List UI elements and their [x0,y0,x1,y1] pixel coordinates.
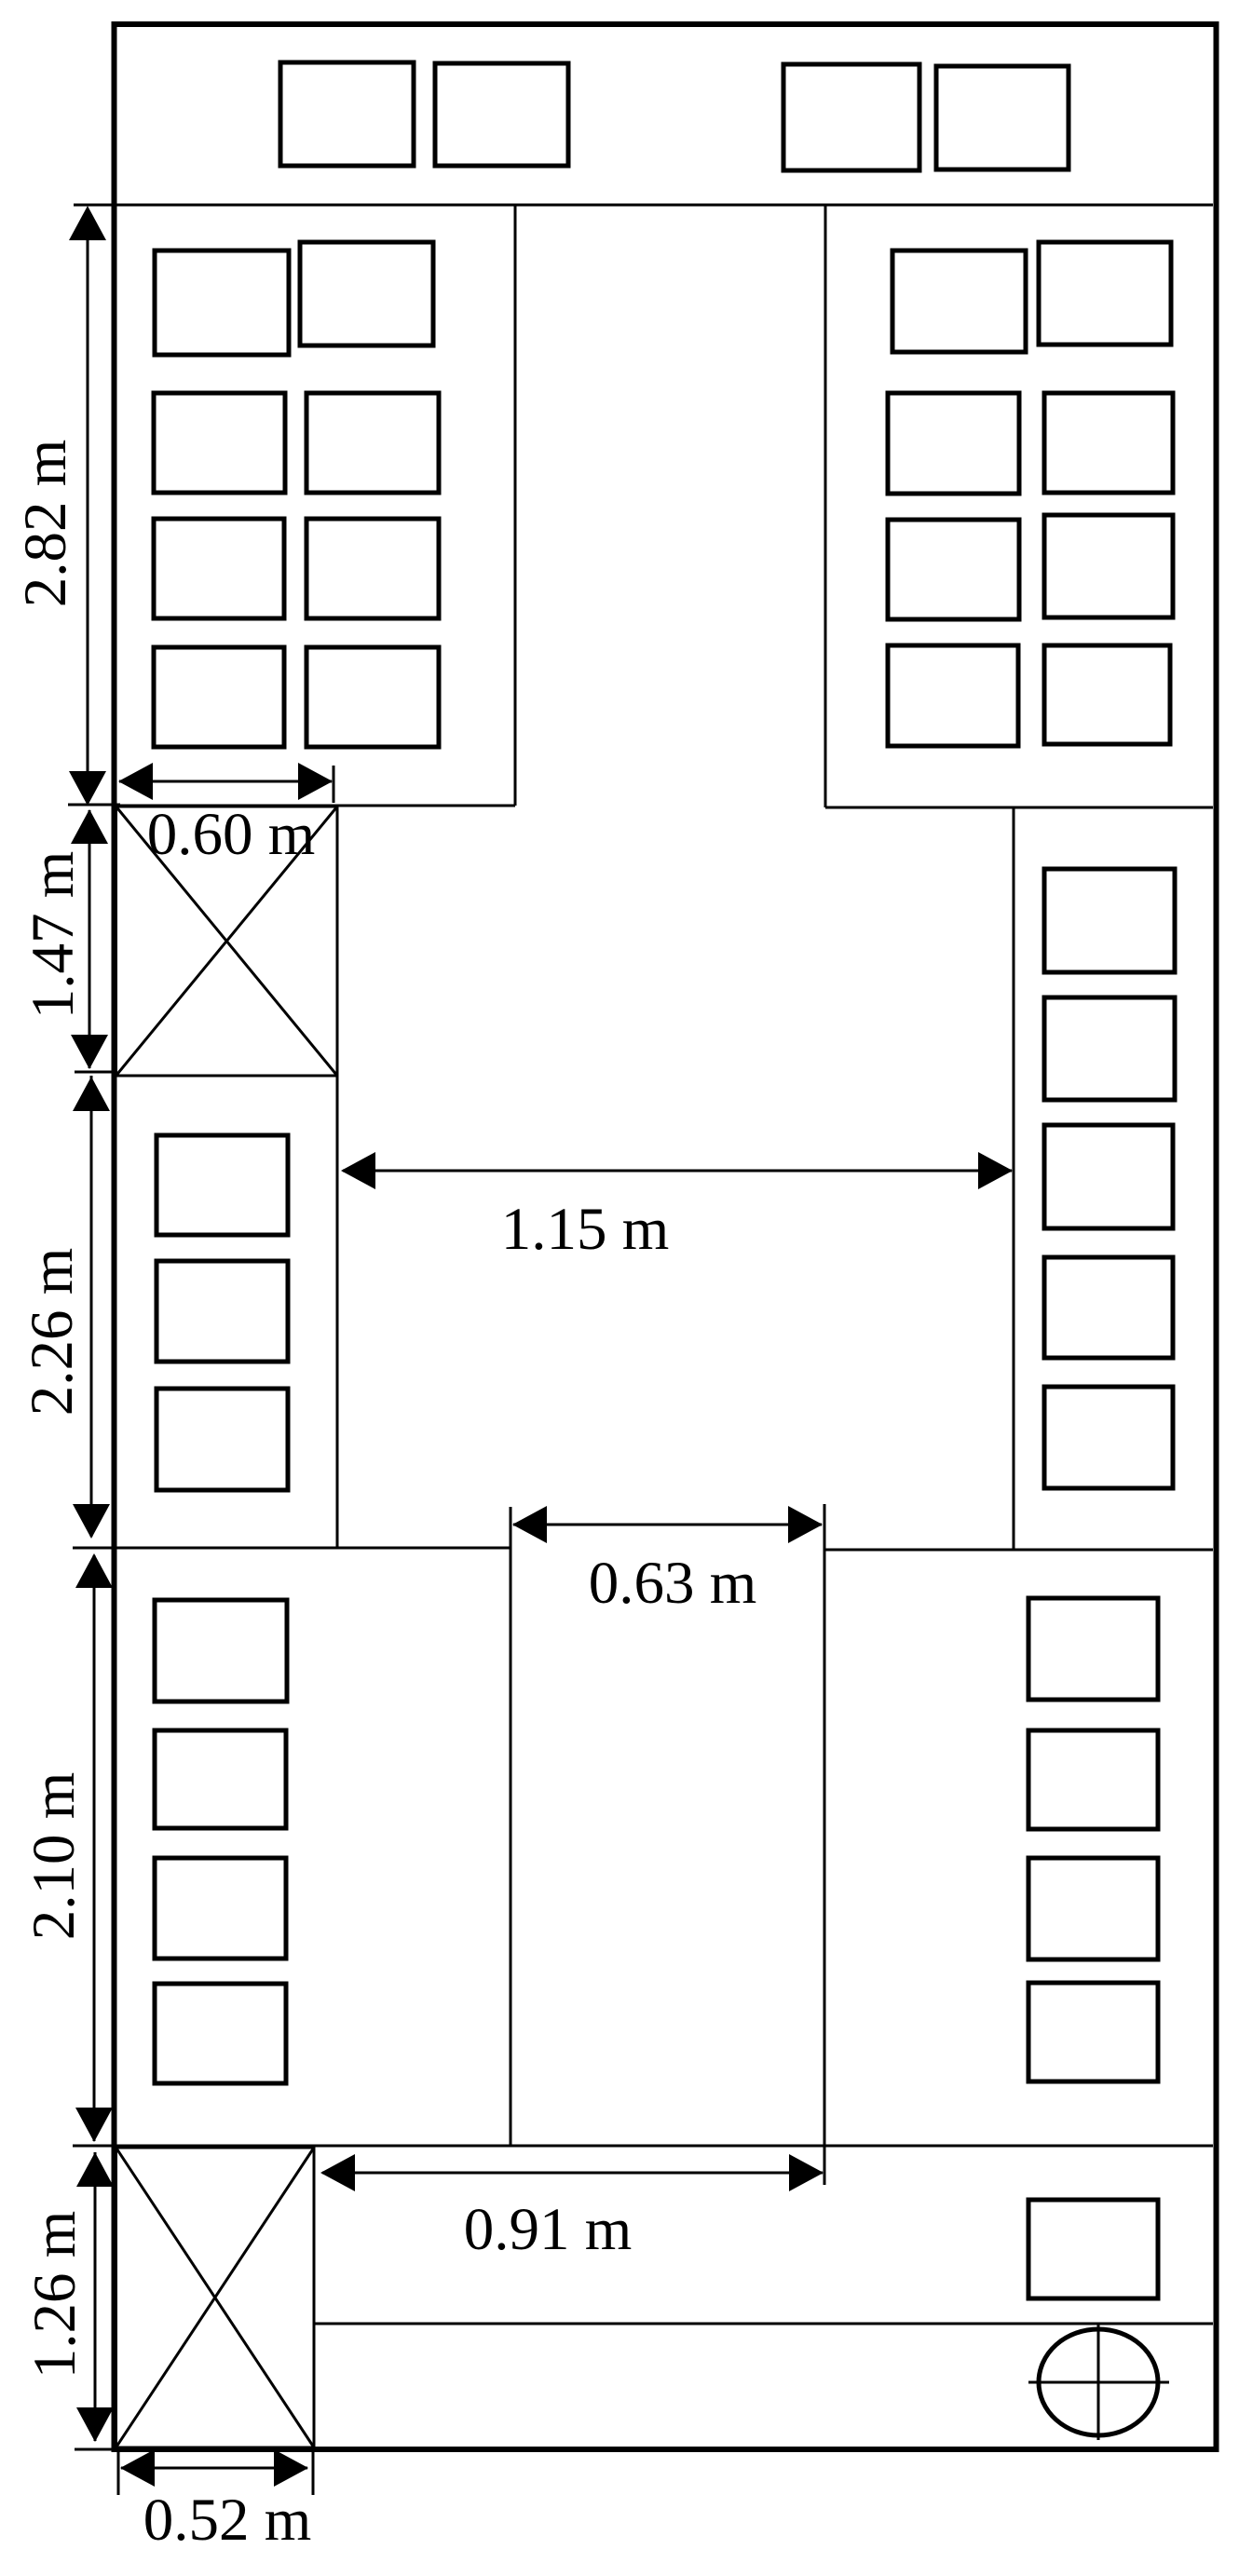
svg-text:0.91 m: 0.91 m [464,2196,633,2263]
svg-text:2.82 m: 2.82 m [12,440,79,608]
svg-text:1.47 m: 1.47 m [20,851,87,1020]
svg-text:0.60 m: 0.60 m [147,801,316,868]
svg-text:1.15 m: 1.15 m [501,1196,670,1263]
svg-text:1.26 m: 1.26 m [21,2211,88,2379]
svg-text:2.10 m: 2.10 m [20,1772,88,1941]
svg-text:0.63 m: 0.63 m [589,1550,757,1617]
svg-text:2.26 m: 2.26 m [19,1248,86,1417]
svg-text:0.52 m: 0.52 m [143,2487,312,2554]
